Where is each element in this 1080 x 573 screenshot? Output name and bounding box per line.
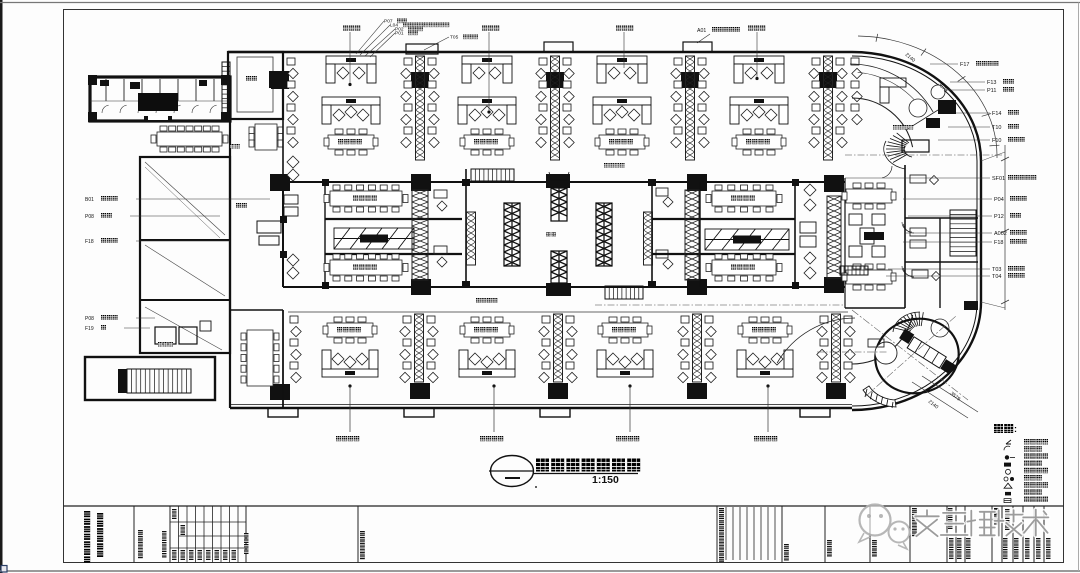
svg-text:1:150: 1:150 xyxy=(592,474,619,486)
svg-text:F18: F18 xyxy=(994,240,1003,246)
svg-text:T04: T04 xyxy=(992,274,1001,280)
svg-text:T05: T05 xyxy=(450,35,459,41)
svg-text:SF01: SF01 xyxy=(992,176,1005,182)
svg-text:F10: F10 xyxy=(992,138,1001,144)
svg-text::: : xyxy=(1014,424,1017,434)
svg-text:F13: F13 xyxy=(987,80,996,86)
svg-text:P12: P12 xyxy=(994,214,1004,220)
svg-text:P11: P11 xyxy=(987,88,996,94)
svg-text:P01: P01 xyxy=(395,31,404,37)
svg-text:F14: F14 xyxy=(992,111,1001,117)
svg-text:T03: T03 xyxy=(992,267,1001,273)
svg-text:F17: F17 xyxy=(960,62,969,68)
svg-text:F18: F18 xyxy=(85,239,94,245)
svg-text:B01: B01 xyxy=(85,197,94,203)
svg-text:P04: P04 xyxy=(994,197,1004,203)
svg-text:F19: F19 xyxy=(85,326,94,332)
svg-text:P08: P08 xyxy=(85,316,94,322)
svg-text:P08: P08 xyxy=(85,214,94,220)
svg-text:A01: A01 xyxy=(697,28,706,34)
